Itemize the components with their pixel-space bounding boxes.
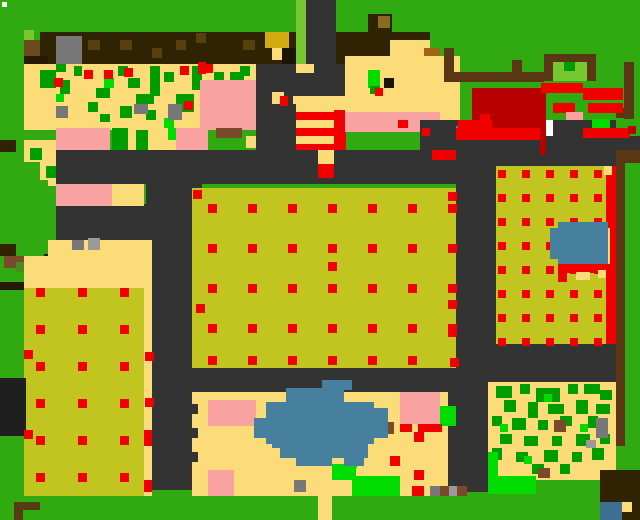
field-east-dots (546, 218, 554, 226)
south-plaza-notch (192, 452, 198, 462)
red-awning (456, 128, 546, 140)
field-east-dots (522, 218, 530, 226)
pond-east (558, 222, 608, 266)
field-center-dots (248, 324, 257, 333)
field-center-dots (368, 284, 377, 293)
pink-building-se (400, 392, 440, 424)
field-red-dot (448, 192, 457, 201)
garden-se-green (600, 390, 612, 400)
plaza-notch (296, 64, 314, 73)
field-west-dots (36, 288, 45, 297)
field-center-dots (408, 284, 417, 293)
garden-se-gray (596, 418, 608, 438)
pond-east-tan (598, 270, 606, 278)
field-east-dots (594, 170, 602, 178)
field-west-dots (36, 362, 45, 371)
south-red-dot (412, 486, 424, 496)
plaza-red-pixel (280, 96, 288, 106)
red-pixel-nw (198, 62, 206, 74)
pink-n-red-pixel (398, 120, 408, 128)
pond-south-east-lobe (374, 408, 388, 438)
south-red-dot (414, 470, 424, 480)
field-west-edge-red (144, 480, 152, 492)
garden-red-dot (84, 70, 93, 79)
south-plaza-notch (192, 404, 198, 414)
stone-block-nw (56, 36, 82, 64)
field-west-dots (36, 399, 45, 408)
terrace-green (136, 130, 148, 150)
field-east-dots (522, 266, 530, 274)
log-nw (0, 140, 16, 152)
field-center-bottom-dots (368, 356, 377, 365)
field-west-edge-red (144, 430, 152, 446)
ne-red-strip (541, 83, 583, 93)
garden-gray (168, 104, 182, 120)
south-plaza-notch (192, 428, 198, 438)
field-west-dots (78, 325, 87, 334)
ne-darkred-column (540, 93, 546, 155)
field-center-dots (448, 284, 457, 293)
pond-east-tan (576, 272, 590, 280)
field-center-dots (288, 284, 297, 293)
stand-stripe (296, 112, 336, 120)
field-east-dots (522, 290, 530, 298)
field-west-dots (78, 399, 87, 408)
field-center-dots (408, 244, 417, 253)
garden-se-green (584, 384, 600, 394)
pink-building-nw (200, 80, 256, 130)
field-center-bottom-dots (328, 356, 337, 365)
field-red-dot (448, 300, 457, 309)
road-red-pixel-ne (422, 128, 430, 136)
fence-pixel (512, 60, 522, 72)
chimney-path (306, 0, 336, 64)
field-center-dots (448, 204, 457, 213)
garden-green (96, 88, 110, 98)
corner-se-tan (622, 502, 632, 512)
stand-stripe (296, 136, 336, 144)
field-center-dots (288, 324, 297, 333)
field-red-dot (24, 350, 33, 359)
field-center-dots (288, 204, 297, 213)
south-red-dot (414, 432, 424, 442)
garden-red-dot (180, 66, 189, 75)
field-center-dots (208, 244, 217, 253)
field-center-dots (368, 324, 377, 333)
field-center-dots (248, 244, 257, 253)
water-se (600, 502, 622, 520)
west-plaza-ext (24, 256, 50, 288)
field-center-bottom-dots (408, 356, 417, 365)
garden-se-gray (586, 440, 596, 448)
field-east-dots (498, 218, 506, 226)
garden-se-bright-strip (488, 476, 536, 494)
fence-east (616, 150, 625, 446)
field-east-dots (546, 290, 554, 298)
garden-green (164, 72, 174, 82)
hedge-light (88, 40, 100, 50)
field-red-dot (450, 358, 459, 367)
garden-gray (134, 104, 148, 114)
south-exit-path (318, 496, 332, 520)
pink-building-s2 (208, 470, 234, 496)
garden-se-green (560, 464, 570, 474)
garden-se-green (504, 400, 516, 412)
garden-se-green (576, 400, 588, 414)
garden-se-green (520, 384, 530, 394)
market-dark-pixel (384, 78, 394, 88)
road-east-stub (456, 342, 616, 386)
stand-stripe (296, 128, 336, 136)
garden-se-green (548, 404, 564, 414)
pond-south (286, 388, 344, 402)
field-red-dot (193, 190, 202, 199)
terrace-tan (128, 128, 136, 150)
tan-building-w (112, 184, 144, 206)
field-east-dots (570, 314, 578, 322)
field-red-dot (145, 398, 154, 407)
garden-se-green (568, 384, 578, 394)
field-west (24, 288, 144, 496)
hedge-light (196, 33, 206, 43)
field-center-dots (328, 284, 337, 293)
ne-darkred-pixel (628, 126, 636, 134)
field-west-dots (120, 362, 129, 371)
garden-green (88, 102, 98, 112)
ne-red-strip (583, 128, 630, 138)
pond-east-west-lobe (550, 228, 559, 259)
field-red-dot (448, 328, 457, 337)
path-debris-brown (440, 486, 449, 496)
garden-green (120, 106, 132, 118)
game-map[interactable] (0, 0, 640, 520)
terrace-green (112, 128, 128, 150)
garden-green (128, 78, 140, 88)
garden-red-dot (54, 78, 63, 87)
road-red-pixel (318, 164, 334, 178)
garden-green (56, 64, 66, 72)
white-door (545, 120, 553, 136)
hedge-light (176, 40, 186, 50)
field-east-dots (498, 170, 506, 178)
garden-red-dot (184, 101, 193, 110)
field-center-bottom-dots (288, 356, 297, 365)
field-center-dots (328, 204, 337, 213)
hedge-light (152, 48, 162, 58)
pond-south-west-lobe (254, 418, 268, 438)
field-red-dot (328, 262, 337, 271)
pink-building-w (56, 184, 112, 206)
field-east-dots (498, 338, 506, 346)
field-center-dots (248, 204, 257, 213)
garden-green (150, 66, 160, 96)
field-center-dots (368, 204, 377, 213)
field-east-dots (498, 194, 506, 202)
field-east-dots (522, 170, 530, 178)
hedge-bump-light (378, 16, 390, 28)
market-red-dot (375, 88, 383, 96)
pink-building-s (208, 400, 256, 426)
pond-south (266, 402, 374, 444)
field-east-dots (522, 314, 530, 322)
field-east-dots (570, 290, 578, 298)
field-east-dots (546, 170, 554, 178)
stand-stripe (296, 120, 336, 128)
garden-se-bright (580, 424, 588, 432)
garden-se-brown (538, 468, 550, 478)
pen-bush-dark (564, 62, 575, 71)
pond-east-south-stub (558, 264, 567, 282)
garden-red-dot (124, 68, 133, 77)
animal-pen-right (587, 54, 596, 81)
garden-se-green (592, 448, 604, 460)
se-red-strip (400, 424, 412, 432)
field-east-dots (570, 194, 578, 202)
field-east-dots (594, 290, 602, 298)
field-red-dot (24, 430, 33, 439)
garden-se-green (538, 420, 548, 430)
garden-se-bright (524, 456, 532, 464)
garden-se-green (524, 436, 538, 446)
field-red-dot (145, 352, 154, 361)
garden-se-green (512, 418, 526, 430)
se-red-strip (418, 424, 442, 432)
field-center-dots (208, 284, 217, 293)
garden-red-dot (104, 70, 113, 79)
field-west-dots (120, 288, 129, 297)
path-debris-gray (449, 486, 457, 496)
field-center-dots (208, 204, 217, 213)
garden-se-green (572, 452, 582, 462)
field-west-dots (120, 436, 129, 445)
field-center-bottom-dots (248, 356, 257, 365)
field-west-dots (78, 436, 87, 445)
garden-green (74, 66, 82, 76)
field-west-dots (36, 473, 45, 482)
road-tan-pixel (318, 150, 334, 164)
field-east-dots (498, 314, 506, 322)
garden-green-bright (56, 94, 64, 102)
field-center-dots (288, 244, 297, 253)
field-center-dots (408, 204, 417, 213)
field-east-dots (594, 314, 602, 322)
pond-south-pixel (272, 436, 282, 448)
glade-green (30, 148, 42, 160)
field-east-dots (522, 338, 530, 346)
field-east-dots (498, 290, 506, 298)
ne-red-strip (583, 88, 623, 100)
field-west-dots (120, 473, 129, 482)
pink-building-step (216, 128, 242, 138)
south-red-dot (390, 456, 400, 466)
field-west-dots (120, 399, 129, 408)
se-green-bright (440, 406, 456, 426)
field-east-dots (570, 170, 578, 178)
field-center-bottom-dots (208, 356, 217, 365)
hedge-light (243, 40, 255, 50)
garden-se-green (552, 436, 562, 446)
path-debris-gray (430, 486, 440, 496)
garden-se-bright (500, 424, 508, 432)
garden-se-brown (554, 420, 566, 432)
field-east-dots (594, 194, 602, 202)
south-plaza-gray (294, 480, 306, 492)
glade-green (46, 166, 56, 178)
field-west-edge (144, 288, 152, 496)
road-west-lower (56, 204, 156, 240)
field-center-dots (408, 324, 417, 333)
field-west-dots (78, 288, 87, 297)
ne-red-strip (588, 103, 623, 113)
field-east-dots (594, 338, 602, 346)
field-west-dots (120, 325, 129, 334)
field-center-dots (328, 324, 337, 333)
field-east-dots (546, 194, 554, 202)
gold-block (265, 32, 289, 48)
garden-se-bright-col (488, 452, 498, 478)
pond-south (344, 452, 364, 466)
field-center-dots (448, 244, 457, 253)
field-east-dots (522, 194, 530, 202)
road-red-w (432, 150, 456, 160)
fence-north (444, 72, 544, 82)
field-east-dots (546, 314, 554, 322)
garden-se-bright (544, 394, 552, 402)
pink-terrace (176, 128, 208, 150)
ne-pink-pixel (566, 112, 583, 120)
terrace-green-bright (168, 128, 176, 140)
animal-pen-left (544, 54, 553, 81)
bush-pixel-nw (24, 30, 34, 40)
field-east-dots (498, 242, 506, 250)
field-west-dots (36, 325, 45, 334)
white-speck (2, 2, 7, 7)
log-sw (14, 508, 23, 520)
hedge-light (120, 40, 132, 50)
field-red-dot (196, 304, 205, 313)
field-east-dots (498, 266, 506, 274)
west-plaza-gray (72, 240, 84, 250)
field-center-dots (208, 324, 217, 333)
field-west-dots (78, 473, 87, 482)
garden-se-green (500, 434, 512, 444)
garden-se-green (496, 386, 512, 398)
field-center (192, 188, 456, 368)
fence-stub-n (444, 48, 454, 74)
ne-green-pixel (592, 119, 610, 128)
garden-green (100, 114, 110, 122)
dark-block-west (0, 378, 26, 436)
garden-se-green (596, 404, 610, 414)
garden-gray (56, 106, 68, 118)
west-plaza-gray (88, 238, 100, 250)
path-debris-brown (457, 486, 467, 496)
field-center-dots (368, 244, 377, 253)
glade-tan (48, 178, 56, 186)
field-east-dots (522, 242, 530, 250)
pink-terrace (56, 128, 110, 150)
field-east-dots (570, 338, 578, 346)
garden-green-bright (104, 78, 114, 88)
garden-se-green (528, 402, 538, 418)
garden-se-green (544, 450, 558, 462)
field-east-dots (546, 266, 554, 274)
pond-south (296, 456, 332, 466)
field-east-dots (546, 338, 554, 346)
field-center-dots (328, 244, 337, 253)
log-west (0, 244, 16, 256)
field-west-dots (78, 362, 87, 371)
field-center-dots (248, 284, 257, 293)
road-west (56, 150, 456, 184)
field-east-tan-pixel (604, 166, 612, 175)
pink-building-n-back (345, 96, 440, 112)
south-green-patch (352, 476, 400, 496)
field-west-dots (36, 436, 45, 445)
